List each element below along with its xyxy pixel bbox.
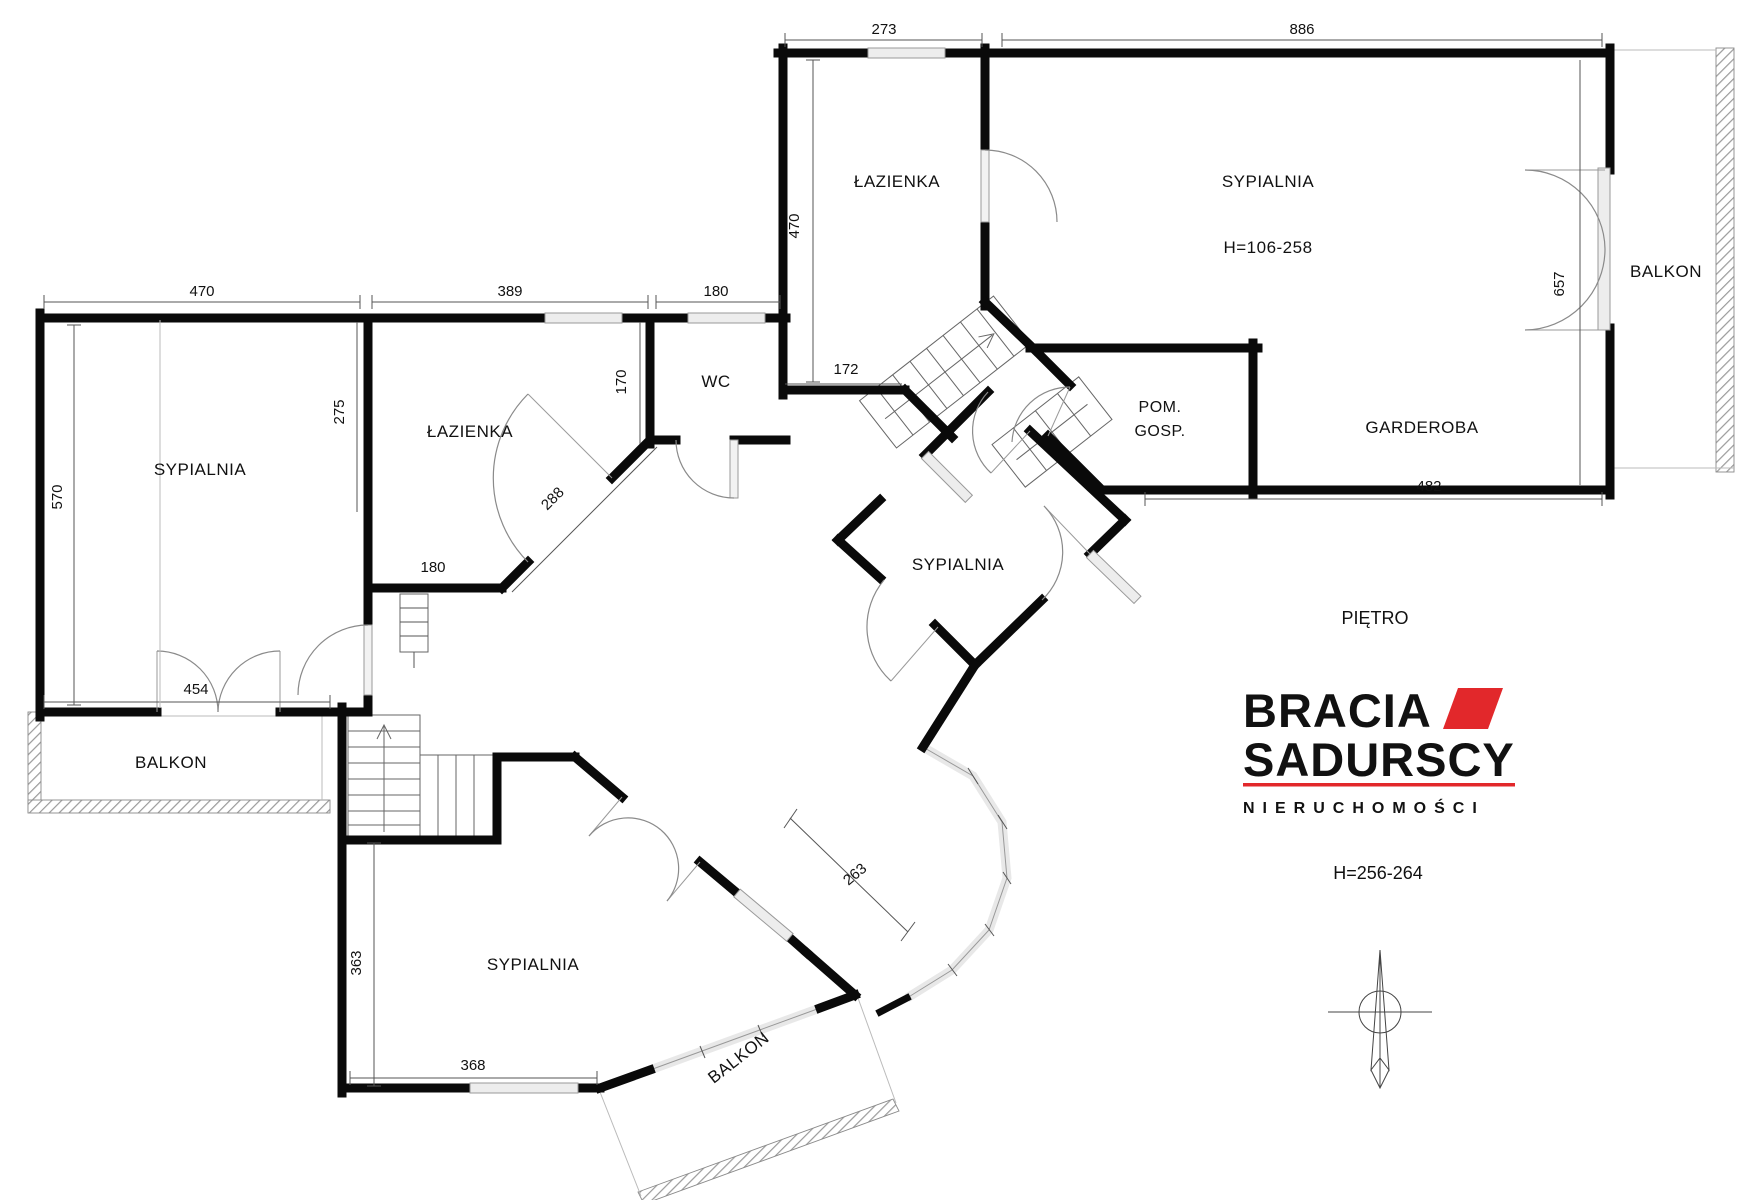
window-bottom-bedroom bbox=[470, 1083, 578, 1093]
dim-top-bath-bottom: 172 bbox=[833, 361, 858, 378]
room-sypialnia-left: SYPIALNIA bbox=[154, 460, 247, 479]
dim-top-bath-width: 273 bbox=[871, 21, 896, 38]
window-balcony-door-main bbox=[1598, 168, 1610, 330]
radiator bbox=[400, 594, 428, 668]
dim-left-bath-width: 389 bbox=[497, 283, 522, 300]
walls bbox=[40, 48, 1610, 1093]
agency-logo: BRACIA SADURSCY NIERUCHOMOŚCI bbox=[1243, 684, 1515, 817]
window-bottom-ne bbox=[734, 889, 793, 941]
room-balkon-right: BALKON bbox=[1630, 262, 1702, 281]
floorplan-page: 470 389 180 273 886 470 172 657 570 275 … bbox=[0, 0, 1762, 1200]
dim-balcony-left-width: 454 bbox=[183, 681, 208, 698]
logo-line1: BRACIA bbox=[1243, 684, 1432, 737]
logo-line3: NIERUCHOMOŚCI bbox=[1243, 798, 1485, 817]
dim-left-bedroom-height: 570 bbox=[49, 484, 66, 509]
room-sypialnia-middle: SYPIALNIA bbox=[912, 555, 1005, 574]
window-wc bbox=[688, 313, 765, 323]
height-note: H=256-264 bbox=[1333, 863, 1423, 883]
dim-top-bath-height: 470 bbox=[786, 213, 803, 238]
room-garderoba: GARDEROBA bbox=[1365, 418, 1478, 437]
window-mid-nw bbox=[921, 451, 972, 502]
logo-line2: SADURSCY bbox=[1243, 733, 1515, 786]
logo-underline bbox=[1243, 783, 1515, 787]
north-arrow-icon bbox=[1328, 950, 1432, 1088]
dim-alcove-width: 263 bbox=[840, 860, 870, 889]
dim-garderoba-width: 482 bbox=[1416, 478, 1441, 495]
balcony-right-hatch bbox=[1610, 48, 1734, 472]
dim-left-bath-chamfer: 288 bbox=[538, 484, 568, 514]
dim-bottom-bedroom-width: 368 bbox=[460, 1057, 485, 1074]
window-left-bath bbox=[545, 313, 622, 323]
room-balkon-left: BALKON bbox=[135, 753, 207, 772]
dim-left-bedroom-inner: 275 bbox=[331, 399, 348, 424]
dim-wc-inner: 170 bbox=[613, 369, 630, 394]
room-wc: WC bbox=[701, 372, 730, 391]
dimension-lines bbox=[44, 33, 1602, 1086]
room-lazienka-left: ŁAZIENKA bbox=[427, 422, 513, 441]
room-lazienka-top: ŁAZIENKA bbox=[854, 172, 940, 191]
window-mid-balcony-door bbox=[1087, 550, 1141, 603]
floor-label: PIĘTRO bbox=[1341, 608, 1408, 628]
dim-bottom-bedroom-height: 363 bbox=[348, 950, 365, 975]
dim-wc-width: 180 bbox=[703, 283, 728, 300]
room-pom-gosp-2: GOSP. bbox=[1134, 423, 1185, 440]
dim-left-bedroom-width: 470 bbox=[189, 283, 214, 300]
floor-plan-svg: 470 389 180 273 886 470 172 657 570 275 … bbox=[0, 0, 1762, 1200]
dimension-labels: 470 389 180 273 886 470 172 657 570 275 … bbox=[49, 21, 1568, 1074]
annotation-column: PIĘTRO BRACIA SADURSCY NIERUCHOMOŚCI H=2… bbox=[1243, 608, 1515, 1088]
room-sypialnia-bottom: SYPIALNIA bbox=[487, 955, 580, 974]
window-top-bath bbox=[868, 48, 945, 58]
balcony-bottom-hatch bbox=[600, 998, 899, 1200]
windows bbox=[470, 48, 1610, 1093]
room-sypialnia-main-height: H=106-258 bbox=[1223, 238, 1312, 257]
stairs-lower bbox=[348, 715, 493, 838]
dim-balcony-door-height: 657 bbox=[1551, 271, 1568, 296]
logo-accent-shape bbox=[1443, 688, 1503, 729]
bay-window bbox=[907, 747, 1011, 998]
room-pom-gosp-1: POM. bbox=[1139, 399, 1182, 416]
dim-left-bath-bottom: 180 bbox=[420, 559, 445, 576]
room-sypialnia-main: SYPIALNIA bbox=[1222, 172, 1315, 191]
dim-main-bedroom-width: 886 bbox=[1289, 21, 1314, 38]
